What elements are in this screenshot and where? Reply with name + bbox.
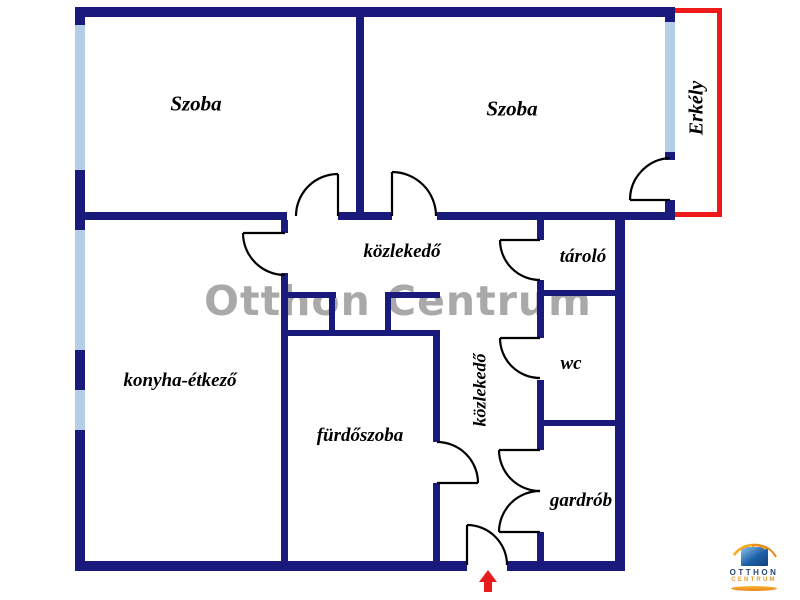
wall-bathroom-top: [281, 330, 440, 336]
window-left-3: [75, 390, 85, 430]
room-label-szoba-right: Szoba: [486, 97, 537, 122]
watermark-text: Otthon Centrum: [178, 277, 618, 325]
wall-right-upper: [665, 7, 675, 22]
room-label-konyha-etkezo: konyha-étkező: [124, 370, 237, 392]
wall-wc-wardrobe-divider: [537, 420, 625, 426]
wall-bathroom-right: [433, 330, 440, 442]
wall-between-rooms: [356, 7, 364, 220]
room-label-kozlekedo-lower: közlekedő: [470, 354, 491, 427]
window-balcony: [665, 22, 675, 152]
room-label-furdoszoba: fürdőszoba: [317, 425, 404, 447]
wall-left: [75, 350, 85, 390]
wall-left: [75, 170, 85, 230]
balcony-outline-right: [717, 8, 722, 217]
wall-corridor-top: [80, 212, 287, 220]
logo-swoosh: [731, 586, 777, 591]
room-label-erkely: Erkély: [686, 81, 709, 135]
wall-kitchen: [281, 273, 288, 561]
wall-top: [75, 7, 675, 17]
balcony-outline-bottom: [675, 212, 722, 217]
balcony-outline-top: [675, 8, 722, 13]
wall-hallway-right: [537, 220, 544, 240]
window-left-1: [75, 25, 85, 170]
wall-hallway-right: [537, 280, 544, 338]
wall-shaft-2: [385, 292, 440, 298]
wall-corridor-top: [437, 212, 675, 220]
room-label-gardrob: gardrób: [550, 490, 612, 512]
logo-house-icon: [731, 542, 777, 568]
entrance-arrow-icon: [484, 582, 492, 592]
wall-kitchen: [281, 220, 288, 233]
wall-hallway-right: [537, 380, 544, 450]
room-label-kozlekedo-upper: közlekedő: [363, 241, 440, 263]
wall-storage-wc-divider: [537, 290, 625, 296]
wall-corridor-top: [338, 212, 392, 220]
logo-text-centrum: CENTRUM: [731, 577, 776, 584]
room-label-wc: wc: [560, 353, 581, 375]
wall-hallway-right: [537, 532, 544, 561]
otthon-centrum-logo: OTTHON CENTRUM: [714, 542, 794, 598]
room-label-tarolo: tároló: [560, 246, 606, 268]
window-left-2: [75, 230, 85, 350]
wall-bottom: [75, 561, 467, 571]
room-label-szoba-left: Szoba: [170, 92, 221, 117]
wall-bottom: [507, 561, 625, 571]
wall-left: [75, 430, 85, 571]
floor-plan: Otthon Centrum: [0, 0, 800, 600]
wall-bathroom-right: [433, 483, 440, 561]
wall-right-lower: [615, 212, 625, 571]
logo-text-otthon: OTTHON: [730, 568, 779, 577]
wall-shaft-1: [281, 292, 336, 298]
wall-right-upper: [665, 152, 675, 160]
entrance-arrow-icon: [479, 570, 497, 582]
wall-left: [75, 7, 85, 25]
